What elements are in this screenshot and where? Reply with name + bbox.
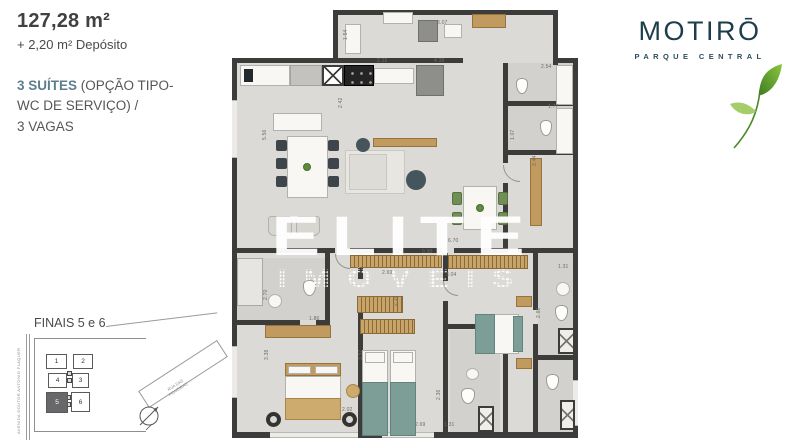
dimension-label: 1.77 [548,104,559,110]
dimension-label: 2.02 [342,407,353,413]
dimension-label: 2.18 [393,295,399,306]
leaf-icon [728,64,784,150]
dimension-label: 2.36 [436,389,442,400]
unit-info: 127,28 m² + 2,20 m² Depósito 3 SUÍTES (O… [17,10,232,137]
floor-plan: 3.071.542.154.382.542.421.771.073.445.56… [230,8,586,444]
dimension-label: 1.54 [343,29,349,40]
dimension-label: 2.42 [338,97,344,108]
street-strip [138,340,228,408]
street-line [26,334,30,440]
compass-icon [134,400,164,434]
brand-logo: MOTIRŌ PARQUE CENTRAL [618,16,782,61]
keyplan-unit-1: 1 [46,354,67,369]
floorplan-page: 127,28 m² + 2,20 m² Depósito 3 SUÍTES (O… [0,0,787,444]
key-plan: FINAIS 5 e 6 AVENIDA DOUTOR ANTONIO FLAQ… [8,316,230,444]
dimension-label: 5.56 [262,129,268,140]
keyplan-unit-2: 2 [73,354,93,369]
street-label-left: AVENIDA DOUTOR ANTONIO FLAQUER [16,348,21,434]
dimension-label: 1.86 [309,316,320,322]
suites-line2: WC DE SERVIÇO) / [17,98,138,113]
dimension-label: 1.07 [510,129,516,140]
keyplan-unit-5: 5 [46,392,68,413]
dimension-label: 1.31 [444,422,455,428]
dimension-label: 2.69 [415,422,426,428]
unit-description: 3 SUÍTES (OPÇÃO TIPO- WC DE SERVIÇO) / 3… [17,76,232,137]
watermark-line2: IMÓVEIS [278,267,531,292]
keyplan-unit-6: 6 [71,392,90,412]
brand-tagline: PARQUE CENTRAL [618,52,782,61]
suites-count: 3 SUÍTES [17,78,77,93]
dimension-label: 4.38 [434,58,445,64]
keyplan-unit-4: 4 [48,373,67,388]
brand-name: MOTIRŌ [618,16,782,47]
watermark-line1: ELITE [272,208,537,264]
dimension-label: 3.07 [437,20,448,26]
unit-area: 127,28 m² [17,10,232,33]
dimension-label: 2.15 [377,58,388,64]
keyplan-title: FINAIS 5 e 6 [34,316,106,330]
dimension-label: 2.60 [536,307,542,318]
dimension-label: 3.44 [532,155,538,166]
dimension-label: 3.57 [358,349,364,360]
dimension-label: 3.38 [264,349,270,360]
keyplan-unit-3: 3 [72,373,89,388]
suites-rest: (OPÇÃO TIPO- [77,78,174,93]
dimension-label: 2.54 [541,64,552,70]
suites-line3: 3 VAGAS [17,119,74,134]
lot-outline-top [106,312,217,327]
unit-deposito: + 2,20 m² Depósito [17,37,232,52]
watermark: ELITE IMÓVEIS [234,208,574,292]
